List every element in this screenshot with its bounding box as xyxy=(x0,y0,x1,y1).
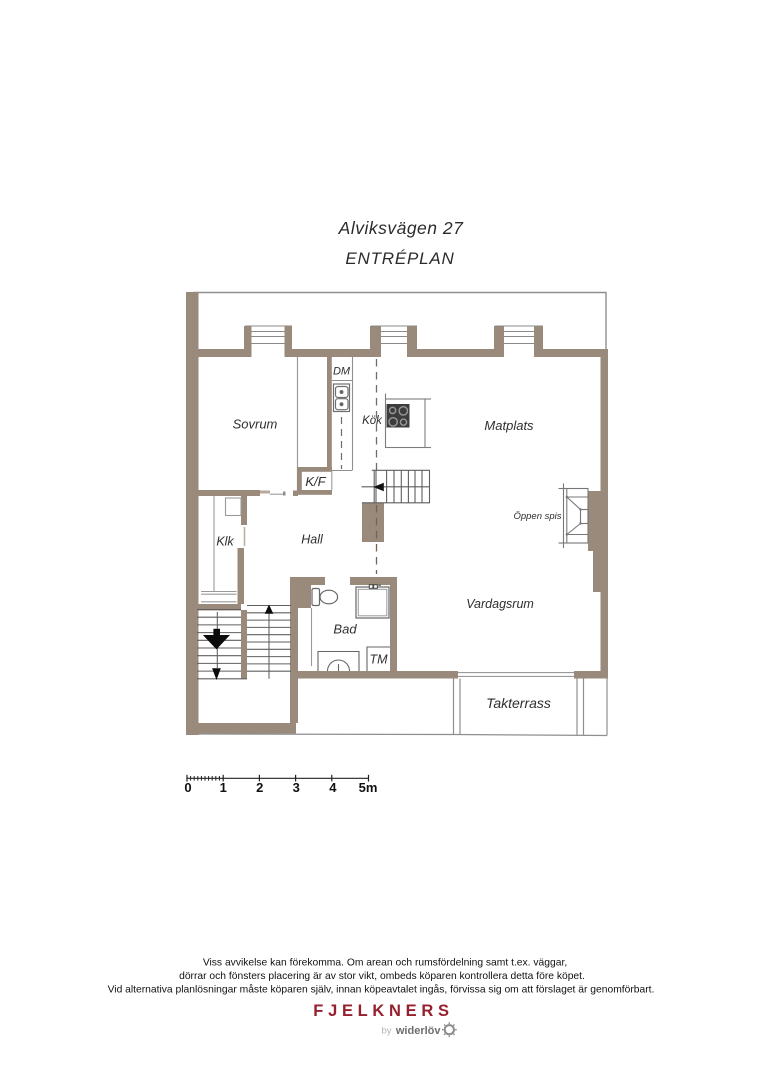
svg-text:TM: TM xyxy=(369,653,388,667)
svg-text:DM: DM xyxy=(333,366,351,378)
svg-text:Matplats: Matplats xyxy=(484,418,534,433)
svg-text:Vardagsrum: Vardagsrum xyxy=(466,597,534,611)
svg-text:0: 0 xyxy=(184,780,191,795)
svg-text:Hall: Hall xyxy=(301,533,324,547)
svg-text:2: 2 xyxy=(256,780,263,795)
svg-text:dörrar och fönsters placering: dörrar och fönsters placering är av stor… xyxy=(179,971,585,982)
svg-text:Vid alternativa planlösningar: Vid alternativa planlösningar måste köpa… xyxy=(108,983,655,995)
svg-text:Viss avvikelse kan förekomma.: Viss avvikelse kan förekomma. Om arean o… xyxy=(203,958,567,969)
svg-text:Sovrum: Sovrum xyxy=(233,417,278,432)
svg-text:FJELKNERS: FJELKNERS xyxy=(313,1002,453,1020)
svg-text:Klk: Klk xyxy=(216,535,234,549)
svg-text:K/F: K/F xyxy=(305,474,326,489)
svg-text:3: 3 xyxy=(293,780,300,795)
svg-text:Öppen spis: Öppen spis xyxy=(513,511,561,522)
svg-text:ENTRÉPLAN: ENTRÉPLAN xyxy=(345,249,454,268)
svg-text:widerlöv: widerlöv xyxy=(395,1025,442,1037)
svg-text:5m: 5m xyxy=(359,780,378,795)
svg-text:Takterrass: Takterrass xyxy=(486,695,551,711)
svg-text:1: 1 xyxy=(220,780,227,795)
svg-text:by: by xyxy=(381,1026,391,1037)
svg-text:Kök: Kök xyxy=(362,415,383,427)
svg-text:Bad: Bad xyxy=(333,622,357,637)
svg-text:Alviksvägen 27: Alviksvägen 27 xyxy=(338,218,464,238)
svg-text:4: 4 xyxy=(329,780,337,795)
